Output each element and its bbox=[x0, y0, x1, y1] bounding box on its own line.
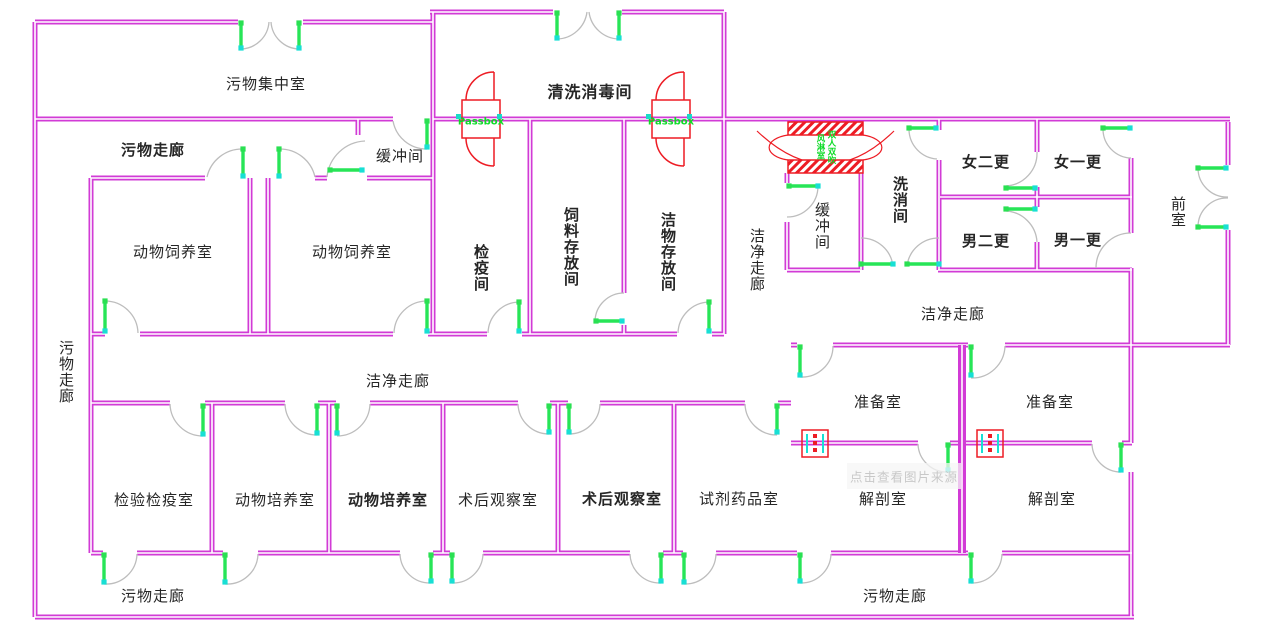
room-label-male-second-change: 男二更 bbox=[962, 232, 1010, 250]
room-label-cleaning-disinfection: 清洗消毒间 bbox=[547, 83, 632, 102]
passbox-2: Passbox bbox=[646, 72, 695, 166]
room-label-prep-1: 准备室 bbox=[854, 393, 902, 411]
corridor-label-dirty-left-vertical: 污物走廊 bbox=[57, 340, 75, 404]
room-label-animal-culture-1: 动物培养室 bbox=[235, 491, 315, 509]
watermark: 点击查看图片来源 bbox=[847, 463, 961, 489]
room-label-prep-2: 准备室 bbox=[1026, 393, 1074, 411]
room-label-inspection-quarantine: 检验检疫室 bbox=[114, 491, 194, 509]
room-label-postop-2: 术后观察室 bbox=[582, 490, 662, 508]
corridor-label-clean-left: 洁净走廊 bbox=[366, 372, 430, 390]
watermark-text: 点击查看图片来源 bbox=[850, 470, 958, 485]
room-label-postop-1: 术后观察室 bbox=[458, 491, 538, 509]
room-label-female-second-change: 女二更 bbox=[962, 153, 1010, 171]
room-label-dissection-1: 解剖室 bbox=[859, 490, 907, 508]
corridor-label-dirty-bottom-1: 污物走廊 bbox=[121, 587, 185, 605]
room-label-animal-culture-2: 动物培养室 bbox=[348, 491, 428, 509]
room-label-anteroom: 前室 bbox=[1169, 196, 1187, 228]
corridor-label-dirty-top: 污物走廊 bbox=[121, 141, 185, 159]
room-label-male-first-change: 男一更 bbox=[1054, 231, 1102, 249]
air-shower-label-left: 风淋室 bbox=[815, 134, 825, 160]
room-label-buffer-topleft: 缓冲间 bbox=[376, 147, 424, 165]
room-label-dissection-2: 解剖室 bbox=[1028, 490, 1076, 508]
room-label-animal-breeding-1: 动物饲养室 bbox=[133, 243, 213, 261]
air-shower-label-right: 双人双吹 bbox=[826, 130, 836, 165]
room-label-reagent: 试剂药品室 bbox=[699, 490, 779, 508]
room-label-buffer-right: 缓冲间 bbox=[813, 202, 831, 250]
floor-plan-page: Passbox Passbox 双人双吹 风淋室 污物集 bbox=[0, 0, 1277, 642]
passbox-1: Passbox bbox=[456, 72, 505, 166]
room-label-female-first-change: 女一更 bbox=[1054, 153, 1102, 171]
floor-plan-drawing: Passbox Passbox 双人双吹 风淋室 污物集 bbox=[0, 0, 1277, 642]
corridor-label-clean-vertical: 洁净走廊 bbox=[748, 228, 766, 292]
corridor-label-dirty-bottom-2: 污物走廊 bbox=[863, 587, 927, 605]
room-label-washing: 洗消间 bbox=[891, 175, 909, 224]
room-label-waste-collection: 污物集中室 bbox=[226, 75, 306, 93]
room-label-clean-goods-storage: 洁物存放间 bbox=[659, 211, 677, 292]
walls bbox=[35, 12, 1230, 617]
corridor-label-clean-right: 洁净走廊 bbox=[921, 305, 985, 323]
room-label-quarantine: 检疫间 bbox=[472, 243, 490, 292]
air-shower: 双人双吹 风淋室 bbox=[757, 122, 894, 173]
room-label-feed-storage: 饲料存放间 bbox=[562, 206, 580, 287]
room-label-animal-breeding-2: 动物饲养室 bbox=[312, 243, 392, 261]
